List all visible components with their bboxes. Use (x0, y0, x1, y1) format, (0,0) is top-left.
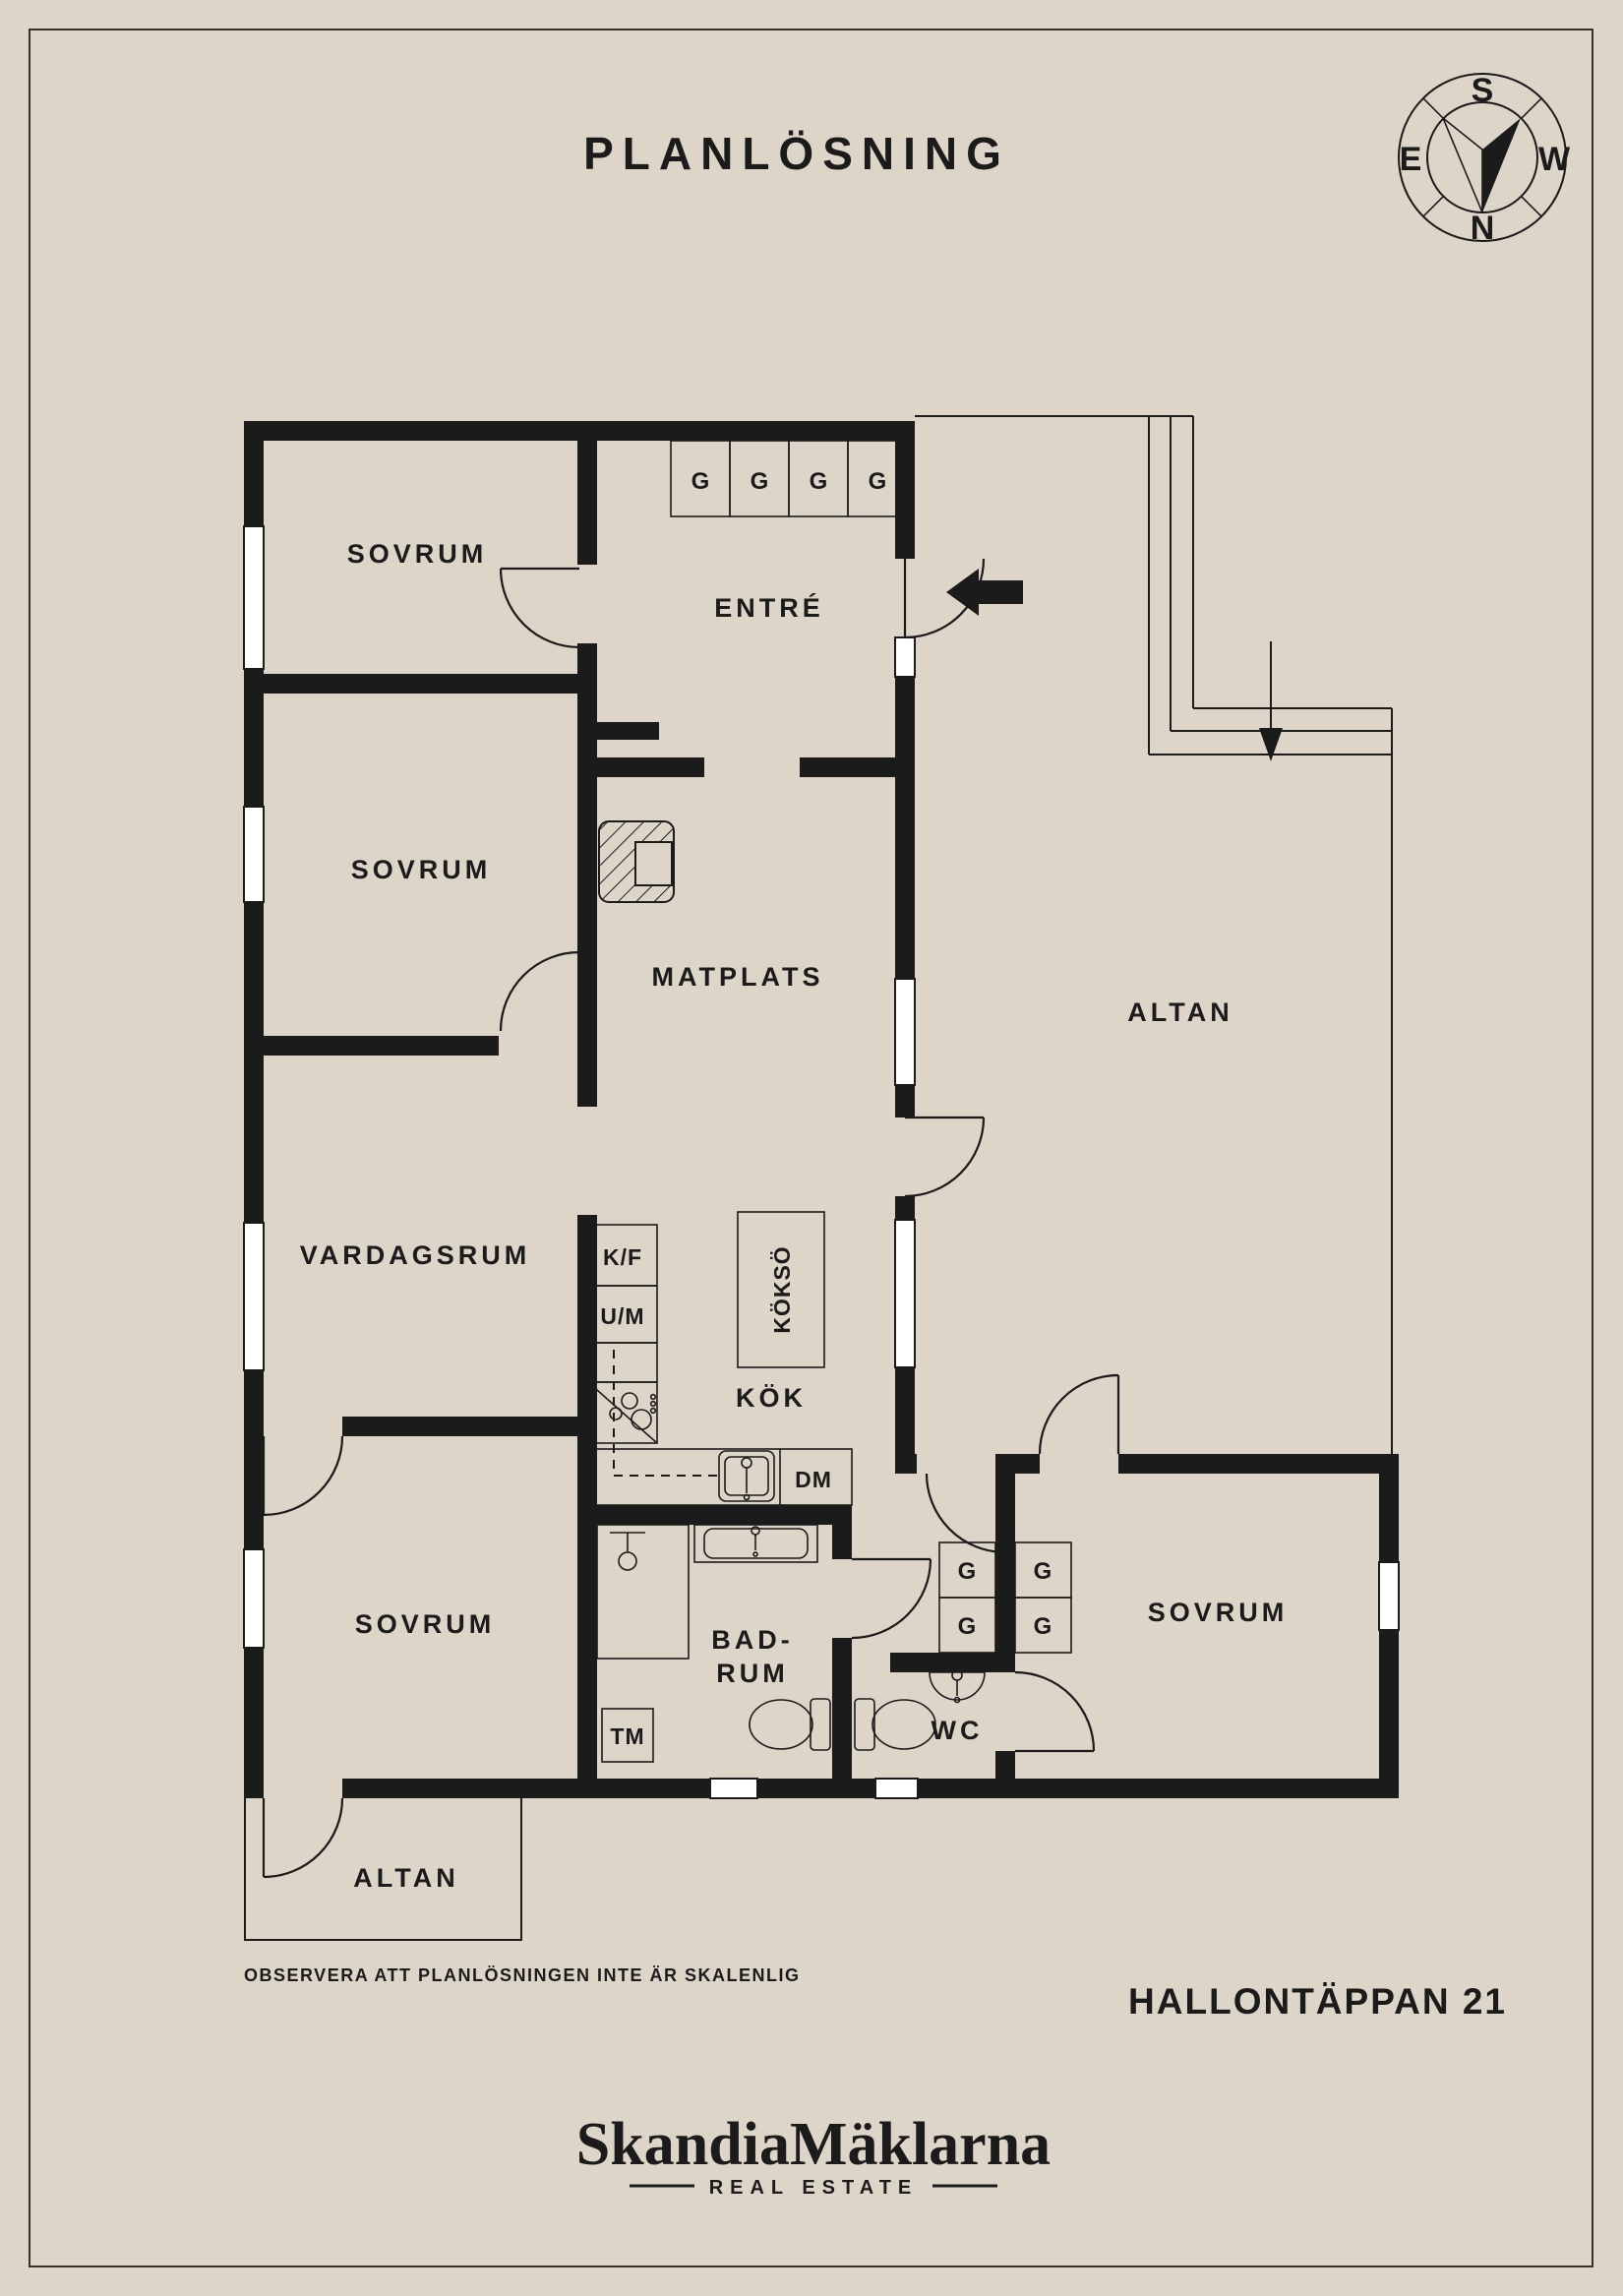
steps-arrow-icon (1259, 641, 1283, 761)
room-labels: SOVRUM ENTRÉ SOVRUM MATPLATS ALTAN VARDA… (300, 539, 1289, 1893)
door-arc (1015, 1672, 1094, 1751)
floor-plan-svg: PLANLÖSNING S W N E (0, 0, 1623, 2296)
brand-tagline: REAL ESTATE (709, 2177, 919, 2199)
kitchen-island-label: KÖKSÖ (769, 1245, 795, 1333)
room-label-sovrum-w: SOVRUM (351, 855, 492, 884)
room-label-wc: WC (932, 1716, 984, 1745)
wardrobe-label: G (810, 468, 828, 495)
compass-needle-filled (1482, 118, 1521, 212)
toilet-icon (855, 1699, 935, 1750)
bathroom-sink-icon (694, 1525, 817, 1562)
chimney (599, 821, 674, 902)
room-label-altan-e: ALTAN (1127, 997, 1232, 1027)
walls (244, 421, 1399, 1798)
compass-west-label: W (1538, 141, 1571, 178)
wardrobe-label: G (1034, 1558, 1052, 1585)
oven-micro-label: U/M (600, 1303, 644, 1329)
toilet-icon (750, 1699, 830, 1750)
door-arc (852, 1559, 931, 1638)
stove-icon (588, 1382, 657, 1443)
door-arc (264, 1436, 342, 1515)
wardrobe-label: G (869, 468, 887, 495)
room-label-badrum-line1: BAD- (711, 1625, 794, 1655)
compass-south-label: S (1472, 72, 1494, 109)
door-arc (905, 1118, 984, 1196)
doors (264, 559, 1118, 1877)
page-border (30, 30, 1593, 2266)
floor-plan-poster: PLANLÖSNING S W N E (0, 0, 1623, 2296)
window (244, 1549, 264, 1648)
brand-logo: SkandiaMäklarna REAL ESTATE (576, 2111, 1051, 2199)
room-label-sovrum-sw: SOVRUM (355, 1609, 496, 1639)
entre-wardrobes: G G G G (671, 441, 907, 516)
door-arc (927, 1474, 1005, 1552)
window (895, 979, 915, 1085)
room-label-matplats: MATPLATS (652, 962, 824, 992)
window (244, 526, 264, 669)
scale-disclaimer: OBSERVERA ATT PLANLÖSNINGEN INTE ÄR SKAL… (244, 1965, 801, 1985)
kitchen-fittings: K/F U/M DM (588, 1212, 852, 1505)
room-label-entre: ENTRÉ (714, 592, 824, 623)
wardrobe-label: G (751, 468, 769, 495)
entrance-arrow-icon (946, 569, 1023, 616)
window (710, 1779, 757, 1798)
compass-needle-outline (1443, 118, 1482, 212)
room-label-altan-s: ALTAN (353, 1863, 458, 1893)
window (895, 637, 915, 677)
wardrobe-label: G (958, 1558, 977, 1585)
wardrobe-label: G (1034, 1613, 1052, 1640)
door-arc (264, 1798, 342, 1877)
page-title: PLANLÖSNING (583, 128, 1010, 179)
compass-east-label: E (1400, 141, 1422, 178)
compass-north-label: N (1471, 210, 1495, 247)
property-address: HALLONTÄPPAN 21 (1128, 1981, 1507, 2022)
brand-name: SkandiaMäklarna (576, 2111, 1051, 2178)
room-label-sovrum-nw: SOVRUM (347, 539, 488, 569)
dishwasher-label: DM (795, 1467, 832, 1492)
fridge-freezer-label: K/F (603, 1244, 642, 1270)
window (875, 1779, 918, 1798)
wardrobe-label: G (691, 468, 710, 495)
window (244, 807, 264, 902)
room-label-badrum-line2: RUM (716, 1659, 789, 1688)
door-arc (501, 569, 579, 647)
compass-rose: S W N E (1399, 72, 1571, 247)
washer-label: TM (610, 1723, 644, 1749)
window (244, 1223, 264, 1370)
shower-icon (597, 1525, 689, 1659)
kitchen-sink-icon (719, 1451, 774, 1501)
door-arc (501, 952, 579, 1031)
wardrobe-label: G (958, 1613, 977, 1640)
wc-sink-icon (930, 1670, 985, 1703)
window (895, 1220, 915, 1367)
room-label-kok: KÖK (736, 1383, 807, 1413)
window (1379, 1562, 1399, 1630)
room-label-sovrum-se: SOVRUM (1148, 1598, 1289, 1627)
kitchen-island: KÖKSÖ (738, 1212, 824, 1367)
deck-outline-and-steps (915, 416, 1392, 1454)
room-label-vardagsrum: VARDAGSRUM (300, 1240, 531, 1270)
door-arc (1040, 1375, 1118, 1454)
